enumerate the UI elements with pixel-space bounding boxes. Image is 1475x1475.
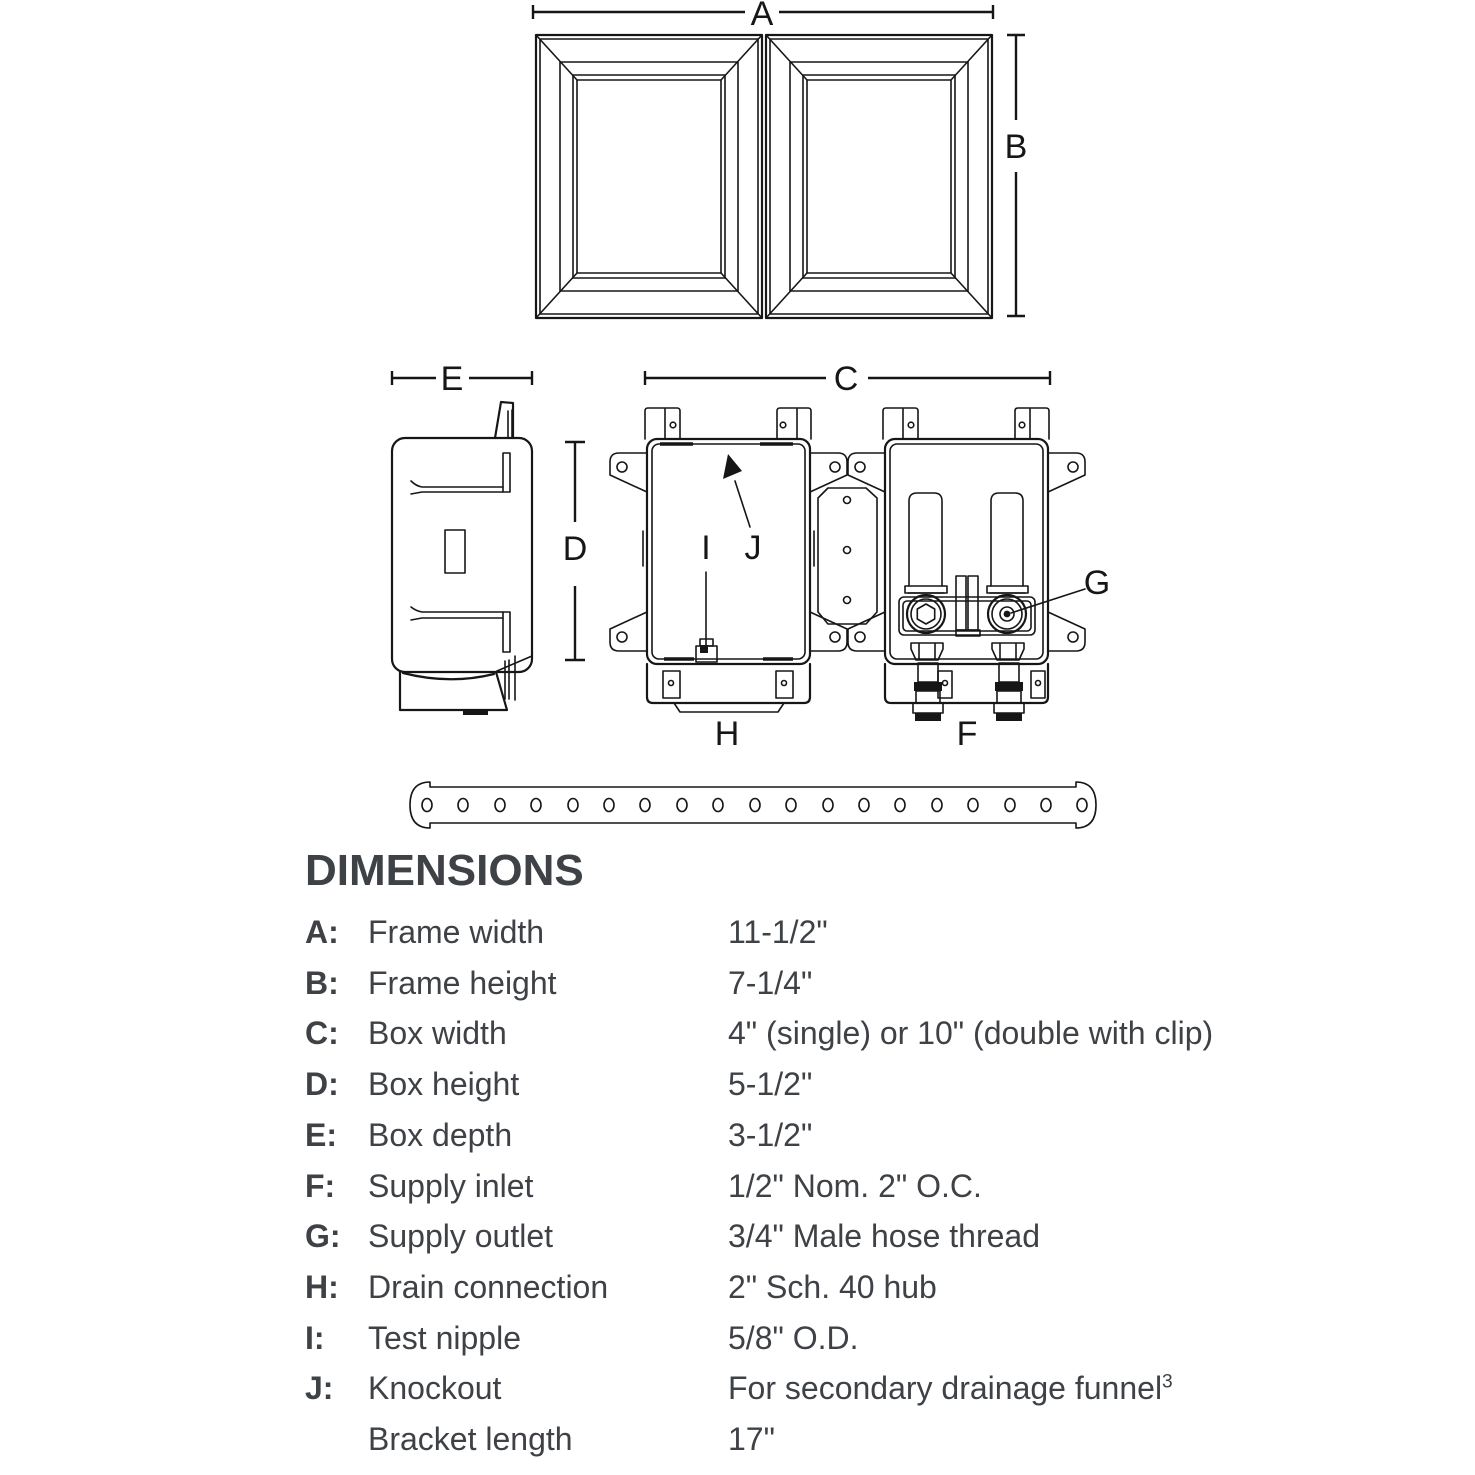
bracket-hole — [604, 799, 614, 812]
bracket-hole — [1041, 799, 1051, 812]
dimension-value: 3-1/2" — [728, 1110, 1455, 1161]
bracket-hole — [458, 799, 468, 812]
footnote-marker: 3 — [1162, 1372, 1173, 1393]
frame-miters — [536, 35, 762, 318]
dimension-name: Supply inlet — [368, 1161, 728, 1212]
dimension-b-line — [1007, 35, 1025, 316]
spec-sheet: A B — [0, 0, 1475, 1475]
bracket-hole — [640, 799, 650, 812]
dimension-value: 17" — [728, 1414, 1455, 1465]
dimension-line-d: D — [563, 442, 588, 660]
tab-hole — [1019, 422, 1025, 428]
dimension-value: 4" (single) or 10" (double with clip) — [728, 1008, 1455, 1059]
table-row: C: Box width 4" (single) or 10" (double … — [305, 1008, 1455, 1059]
dimension-name: Frame height — [368, 958, 728, 1009]
lower-bracket-arm — [411, 607, 503, 620]
dimension-line-b: B — [1005, 35, 1028, 316]
bracket-hole — [1077, 799, 1087, 812]
bracket-hole — [568, 799, 578, 812]
center-post — [956, 576, 966, 630]
dimension-value: 2" Sch. 40 hub — [728, 1262, 1455, 1313]
dimension-name: Test nipple — [368, 1313, 728, 1364]
frame-bevel — [560, 62, 738, 291]
wing-hole — [855, 632, 865, 642]
frame-miters — [766, 35, 992, 318]
callout-label-j: J — [745, 529, 762, 567]
top-flange-tab — [495, 402, 513, 438]
bracket-hole — [495, 799, 505, 812]
bracket-hole — [713, 799, 723, 812]
table-row: G: Supply outlet 3/4" Male hose thread — [305, 1211, 1455, 1262]
table-row: Bracket length 17" — [305, 1414, 1455, 1465]
hose-ring — [997, 691, 1021, 703]
knockout-slot — [445, 530, 465, 573]
upper-bracket-arm — [411, 481, 503, 494]
table-row: I: Test nipple 5/8" O.D. — [305, 1313, 1455, 1364]
tower-collar — [905, 586, 947, 593]
clip-hole — [844, 597, 851, 604]
upper-bracket-bar — [503, 453, 510, 492]
bracket-hole — [422, 799, 432, 812]
frame-opening — [807, 80, 951, 273]
mounting-bracket-strip — [410, 782, 1096, 828]
bracket-hole — [823, 799, 833, 812]
dimension-value-text: For secondary drainage funnel — [728, 1370, 1162, 1406]
dimension-letter: A: — [305, 907, 368, 958]
dimension-letter: B: — [305, 958, 368, 1009]
lower-bracket-bar — [503, 612, 510, 652]
bottom-skirt — [647, 664, 810, 703]
wing-hole — [1068, 462, 1078, 472]
valve-tower — [909, 493, 942, 586]
table-row: A: Frame width 11-1/2" — [305, 907, 1455, 958]
callout-label-f: F — [957, 715, 978, 753]
tab-hole — [943, 681, 948, 686]
box-side-view — [392, 402, 532, 715]
technical-diagram: A B — [0, 0, 1475, 840]
dimension-letter: I: — [305, 1313, 368, 1364]
dimension-value: 7-1/4" — [728, 958, 1455, 1009]
dimension-value: 1/2" Nom. 2" O.C. — [728, 1161, 1455, 1212]
wing-hole — [1068, 632, 1078, 642]
table-row: F: Supply inlet 1/2" Nom. 2" O.C. — [305, 1161, 1455, 1212]
hose-ring — [994, 703, 1024, 713]
dimension-value: 5-1/2" — [728, 1059, 1455, 1110]
dimensions-section: DIMENSIONS A: Frame width 11-1/2" B: Fra… — [305, 849, 1455, 1465]
hose-band — [914, 682, 942, 691]
tower-collar — [987, 586, 1028, 593]
drain-hub-front — [674, 703, 784, 712]
table-row: D: Box height 5-1/2" — [305, 1059, 1455, 1110]
hose-ring — [913, 703, 943, 713]
skirt-tab — [663, 671, 680, 698]
box-front-view: I J H — [610, 408, 847, 753]
dimension-letter: D: — [305, 1059, 368, 1110]
tab-hole — [1036, 681, 1041, 686]
dimension-label-b: B — [1005, 128, 1028, 166]
dimension-label-d: D — [563, 530, 588, 568]
dimension-line-c: C — [645, 360, 1050, 398]
frame-left-panel — [536, 35, 762, 318]
table-row: H: Drain connection 2" Sch. 40 hub — [305, 1262, 1455, 1313]
dimension-letter: J: — [305, 1363, 368, 1414]
bracket-hole — [750, 799, 760, 812]
hose-tip — [915, 713, 941, 721]
clip-hole — [844, 497, 851, 504]
dimension-name: Box height — [368, 1059, 728, 1110]
dimension-name: Drain connection — [368, 1262, 728, 1313]
callout-label-i: I — [701, 529, 710, 567]
callout-leader-j — [735, 481, 750, 527]
mounting-wing — [1048, 453, 1085, 492]
skirt-tab — [1031, 671, 1045, 698]
mounting-wing — [1048, 612, 1085, 651]
bracket-hole — [895, 799, 905, 812]
callout-label-g: G — [1084, 564, 1110, 602]
bracket-hole — [968, 799, 978, 812]
skirt-tab — [776, 671, 793, 698]
hose-band — [995, 682, 1023, 691]
wing-hole — [617, 632, 627, 642]
dimension-letter: F: — [305, 1161, 368, 1212]
dimension-letter — [305, 1414, 368, 1465]
frame-bevel — [790, 62, 968, 291]
tab-hole — [669, 681, 674, 686]
callout-label-h: H — [715, 715, 740, 753]
leader-end-dot — [1004, 611, 1011, 618]
clip-hole — [844, 547, 851, 554]
mounting-wing — [810, 453, 847, 492]
bracket-hole — [677, 799, 687, 812]
mounting-wing — [610, 612, 647, 651]
dimension-name: Supply outlet — [368, 1211, 728, 1262]
mounting-wing — [810, 612, 847, 651]
bracket-outline — [410, 782, 1096, 828]
bracket-hole — [531, 799, 541, 812]
frame-outline — [766, 35, 992, 318]
top-flange-slot — [508, 410, 512, 438]
bracket-hole — [859, 799, 869, 812]
mounting-tab — [777, 408, 811, 439]
dimension-name: Box depth — [368, 1110, 728, 1161]
wing-hole — [855, 462, 865, 472]
valve-tower — [991, 493, 1023, 586]
dimensions-table: A: Frame width 11-1/2" B: Frame height 7… — [305, 907, 1455, 1465]
tab-hole — [908, 422, 914, 428]
dimension-letter: C: — [305, 1008, 368, 1059]
dimension-label-e: E — [441, 360, 464, 398]
dimension-label-a: A — [751, 0, 774, 33]
box-open-view: G F — [848, 408, 1110, 753]
bottom-skirt — [885, 664, 1048, 703]
section-heading: DIMENSIONS — [305, 849, 1455, 893]
center-post — [968, 576, 978, 630]
cover-side-notches — [643, 531, 814, 566]
dimension-letter: H: — [305, 1262, 368, 1313]
hose-tip — [996, 713, 1022, 721]
hose-neck — [999, 663, 1019, 682]
table-row: J: Knockout For secondary drainage funne… — [305, 1363, 1455, 1414]
dimension-value: 3/4" Male hose thread — [728, 1211, 1455, 1262]
dimension-name: Frame width — [368, 907, 728, 958]
table-row: B: Frame height 7-1/4" — [305, 958, 1455, 1009]
table-row: E: Box depth 3-1/2" — [305, 1110, 1455, 1161]
joining-clip — [818, 488, 877, 624]
wing-hole — [617, 462, 627, 472]
bracket-hole — [932, 799, 942, 812]
dimension-line-a: A — [533, 0, 993, 33]
dimension-label-c: C — [834, 360, 859, 398]
dimension-value: 11-1/2" — [728, 907, 1455, 958]
dimension-name: Bracket length — [368, 1414, 728, 1465]
dimension-letter: G: — [305, 1211, 368, 1262]
hex-nut — [992, 643, 1024, 660]
frame-bevel — [573, 75, 725, 278]
tab-hole — [782, 681, 787, 686]
tab-hole — [780, 422, 786, 428]
dimension-name: Knockout — [368, 1363, 728, 1414]
supply-inlet-right — [994, 663, 1024, 721]
hex-nut — [911, 643, 943, 660]
arrowhead — [723, 454, 742, 479]
dimension-name: Box width — [368, 1008, 728, 1059]
dimension-value: For secondary drainage funnel3 — [728, 1363, 1455, 1414]
frame-outline — [536, 35, 762, 318]
mounting-wing — [848, 612, 885, 651]
frame-front-view — [536, 35, 992, 318]
box-body — [392, 438, 532, 672]
frame-bevel — [803, 75, 955, 278]
tab-hole — [670, 422, 676, 428]
dimension-line-e: E — [392, 360, 532, 398]
drain-hub-side — [400, 672, 507, 710]
hose-neck — [918, 663, 938, 682]
hub-foot — [463, 709, 488, 715]
frame-opening — [577, 80, 721, 273]
mounting-wing — [848, 453, 885, 492]
wing-hole — [830, 462, 840, 472]
hose-ring — [916, 691, 940, 703]
wing-hole — [830, 632, 840, 642]
mounting-wing — [610, 453, 647, 492]
dimension-value: 5/8" O.D. — [728, 1313, 1455, 1364]
bracket-hole — [786, 799, 796, 812]
valve-hex — [917, 604, 934, 624]
bracket-hole — [1005, 799, 1015, 812]
frame-right-panel — [766, 35, 992, 318]
dimension-letter: E: — [305, 1110, 368, 1161]
